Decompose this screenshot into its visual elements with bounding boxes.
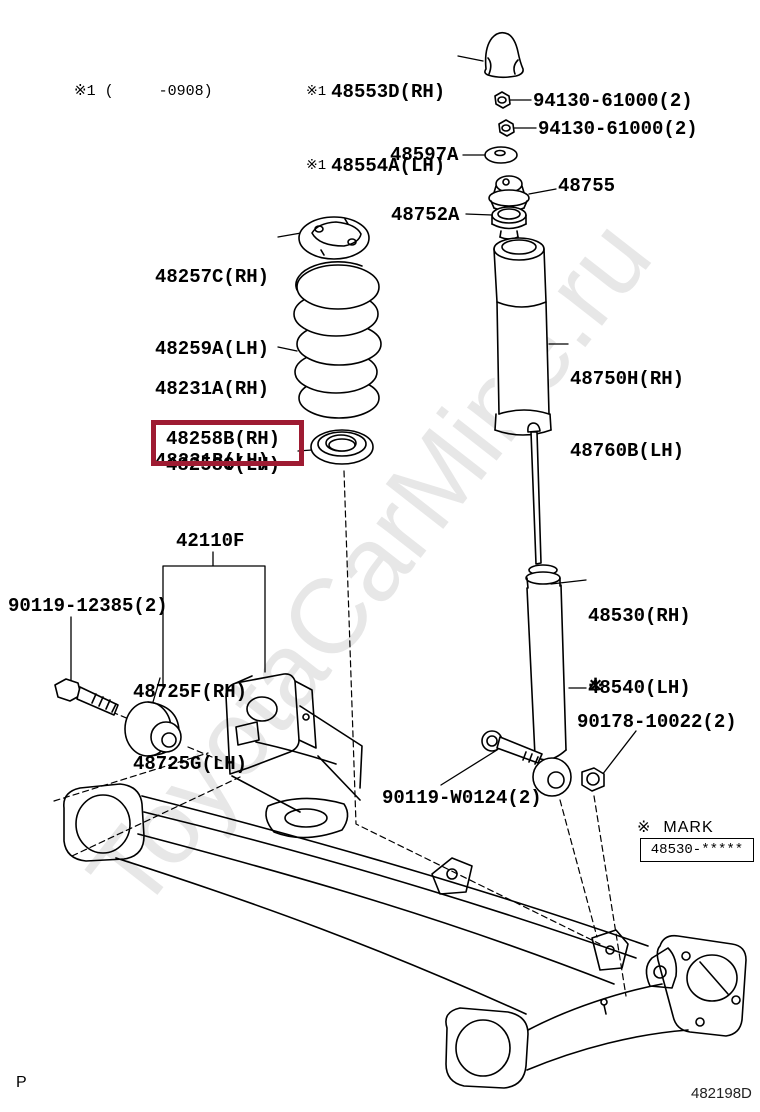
label-arm-bushing[interactable]: 48725F(RH) 48725G(LH) [133, 632, 247, 824]
part-number[interactable]: 48750H(RH) [570, 367, 684, 391]
label-bearing[interactable]: 48752A [391, 203, 459, 227]
lower-insulator-drawing [311, 430, 373, 464]
label-shock-nut[interactable]: 90178-10022(2) [577, 710, 737, 734]
mark-symbol: ※ [637, 819, 651, 836]
part-number[interactable]: 48540(LH) [588, 676, 691, 700]
label-upper-nut-2[interactable]: 94130-61000(2) [538, 117, 698, 141]
diagram-code: 482198D [691, 1085, 752, 1102]
label-bump-stop[interactable]: ※148553D(RH) ※148554A(LH) [306, 32, 445, 228]
part-number[interactable]: 48530(RH) [588, 604, 691, 628]
upper-nut-2-drawing [499, 120, 514, 136]
shock-absorber-drawing [526, 423, 571, 796]
parts-diagram-page: ToyotaCarMine.ru [0, 0, 760, 1112]
part-number[interactable]: 48760B(LH) [570, 439, 684, 463]
label-washer[interactable]: 48597A [390, 143, 458, 167]
shock-nut-drawing [582, 768, 604, 791]
page-letter: P [16, 1074, 27, 1092]
washer-drawing [485, 147, 517, 163]
ref-mark: ※1 [306, 84, 326, 100]
bump-stop-drawing [485, 33, 523, 78]
label-axle-beam[interactable]: 42110F [176, 529, 244, 553]
part-number[interactable]: 48257C(RH) [155, 265, 269, 289]
upper-nut-1-drawing [495, 92, 510, 108]
mark-table-header: ※MARK [637, 817, 714, 837]
ref-mark: ※1 [306, 158, 326, 174]
coil-spring-drawing [294, 262, 381, 418]
support-mount-drawing [489, 176, 529, 211]
dust-cover-drawing [494, 238, 551, 435]
part-number[interactable]: 48231A(RH) [155, 377, 269, 401]
applicability-note: ※1 ( -0908) [74, 81, 213, 100]
part-number[interactable]: 48725G(LH) [133, 752, 247, 776]
part-number[interactable]: 48553D(RH) [331, 81, 445, 103]
label-dust-cover[interactable]: 48750H(RH) 48760B(LH) [570, 319, 684, 511]
label-axle-bolt[interactable]: 90119-12385(2) [8, 594, 168, 618]
label-lower-insulator-rh[interactable]: 48258B(RH) [166, 427, 280, 451]
shock-bolt-drawing [482, 731, 542, 764]
shock-mark-symbol: ※ [588, 675, 603, 697]
axle-bolt-drawing [55, 679, 118, 715]
bearing-drawing [492, 207, 526, 239]
mark-header-text: MARK [663, 819, 713, 836]
label-shock-bolt[interactable]: 90119-W0124(2) [382, 786, 542, 810]
mark-table-value: 48530-***** [640, 838, 754, 862]
label-upper-nut-1[interactable]: 94130-61000(2) [533, 89, 693, 113]
part-number[interactable]: 48725F(RH) [133, 680, 247, 704]
label-support[interactable]: 48755 [558, 174, 615, 198]
